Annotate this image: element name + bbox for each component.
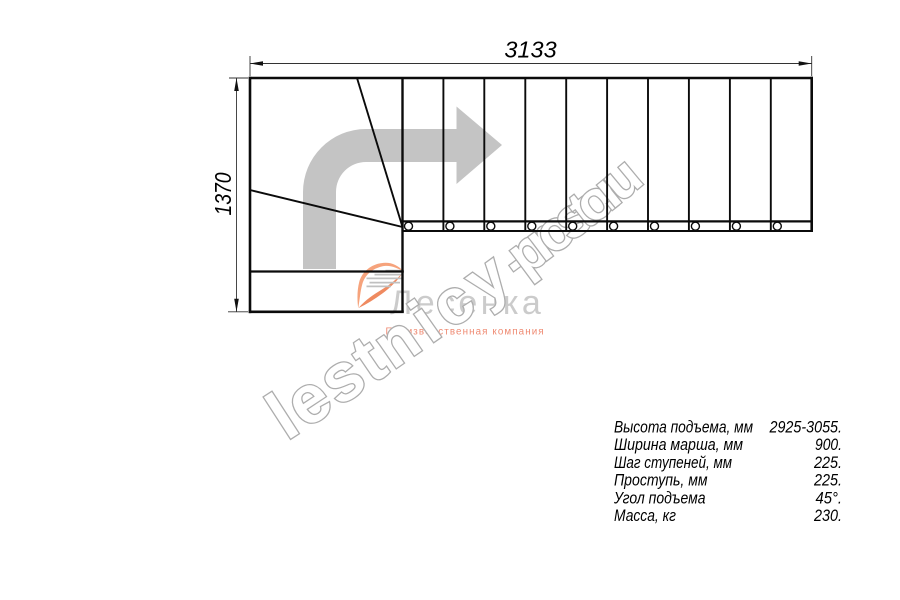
svg-text:900.: 900.	[815, 436, 842, 454]
svg-text:Высота подъема, мм: Высота подъема, мм	[614, 419, 753, 437]
svg-text:Масса, кг: Масса, кг	[614, 507, 676, 525]
svg-text:Шаг ступеней, мм: Шаг ступеней, мм	[614, 454, 732, 472]
svg-text:Ширина марша, мм: Ширина марша, мм	[614, 436, 743, 454]
svg-text:Угол подъема: Угол подъема	[613, 489, 705, 507]
svg-text:Проступь, мм: Проступь, мм	[614, 472, 708, 490]
svg-text:225.: 225.	[813, 472, 842, 490]
svg-text:2925-3055.: 2925-3055.	[769, 419, 842, 437]
svg-text:45°.: 45°.	[816, 489, 843, 507]
svg-text:230.: 230.	[813, 507, 842, 525]
svg-text:225.: 225.	[813, 454, 842, 472]
svg-text:3133: 3133	[504, 37, 556, 63]
svg-text:1370: 1370	[210, 173, 236, 216]
